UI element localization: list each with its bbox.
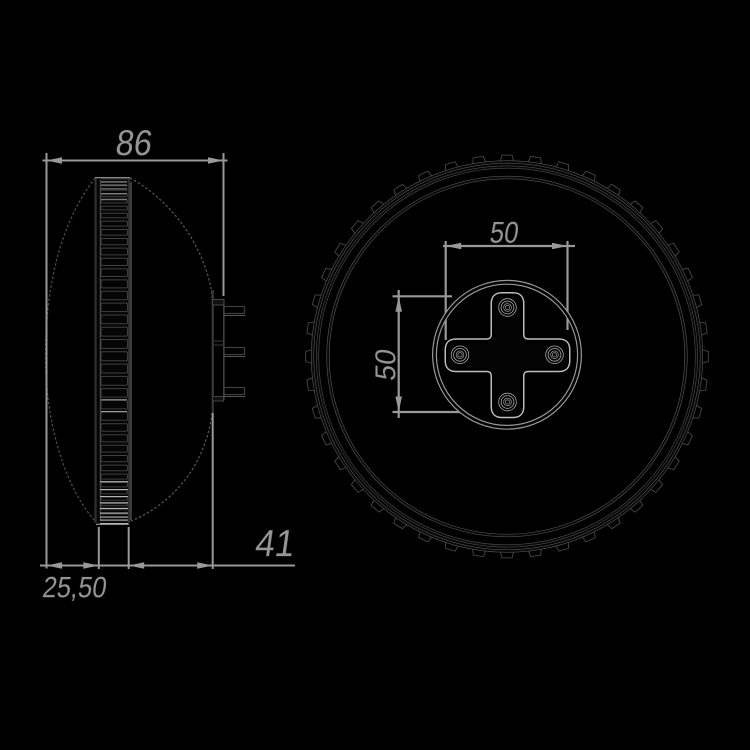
svg-text:50: 50: [371, 347, 402, 382]
svg-text:41: 41: [253, 522, 298, 564]
svg-text:25,50: 25,50: [41, 571, 109, 604]
svg-text:86: 86: [113, 124, 155, 164]
svg-text:50: 50: [488, 216, 521, 249]
